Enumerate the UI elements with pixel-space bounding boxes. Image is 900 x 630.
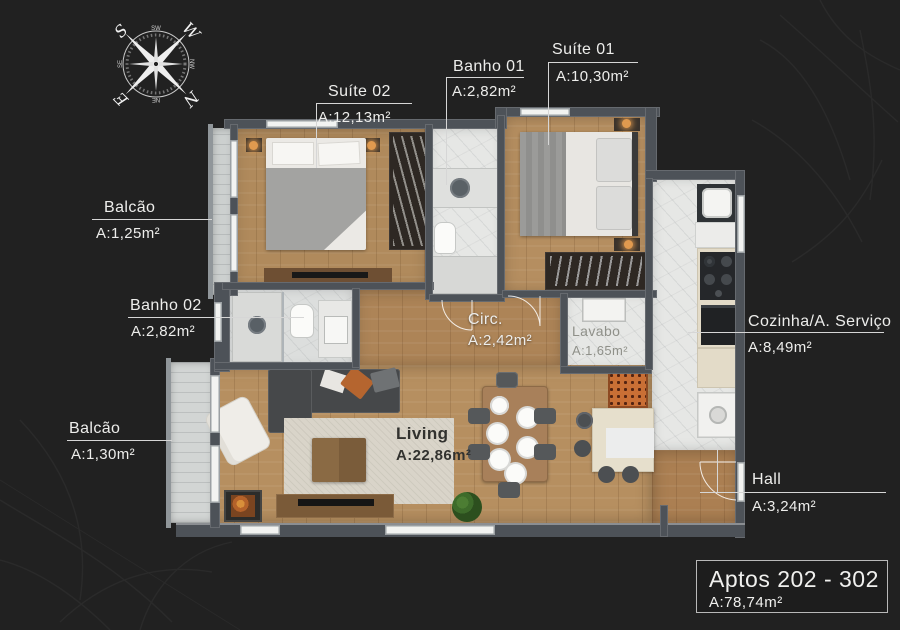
hall-door-arc	[700, 462, 736, 500]
room-area: A:1,30m²	[71, 446, 135, 464]
room-area: A:1,65m²	[572, 343, 628, 359]
room-area: A:2,82m²	[452, 83, 516, 101]
label-suite-01: Suíte 01	[552, 40, 615, 59]
room-area: A:2,42m²	[468, 332, 532, 350]
label-circ: Circ. A:2,42m²	[468, 310, 532, 350]
compass-inner-nw: NW	[188, 59, 194, 69]
apartment-title: Aptos 202 - 302	[709, 566, 887, 593]
apartment-title-box: Aptos 202 - 302 A:78,74m²	[696, 560, 888, 613]
room-name: Hall	[752, 470, 781, 489]
leader-line	[700, 492, 886, 493]
label-balcao-01: Balcão	[104, 198, 155, 217]
compass-inner-sw: SW	[151, 26, 161, 32]
label-banho-01-area: A:2,82m²	[452, 80, 516, 101]
label-balcao-02-area: A:1,30m²	[71, 443, 135, 464]
label-banho-02: Banho 02	[130, 296, 202, 315]
room-name: Balcão	[104, 198, 155, 217]
compass-inner-ne: NE	[152, 96, 160, 102]
label-banho-01: Banho 01	[453, 57, 525, 76]
label-suite-02: Suíte 02	[328, 82, 391, 101]
label-hall: Hall	[752, 470, 781, 489]
label-lavabo: Lavabo A:1,65m²	[572, 323, 628, 358]
room-name: Cozinha/A. Serviço	[748, 312, 891, 331]
leader-line	[316, 103, 317, 168]
leader-line	[717, 445, 718, 492]
room-area: A:12,13m²	[318, 109, 391, 127]
label-suite-02-area: A:12,13m²	[318, 106, 391, 127]
leader-line	[446, 77, 524, 78]
leader-line	[316, 103, 412, 104]
compass-letter-s: S	[110, 20, 131, 41]
leader-line	[128, 317, 304, 318]
label-balcao-01-area: A:1,25m²	[96, 222, 160, 243]
leader-line	[92, 219, 212, 220]
room-area: A:8,49m²	[748, 339, 812, 357]
room-name: Lavabo	[572, 323, 628, 340]
label-hall-area: A:3,24m²	[752, 495, 816, 516]
compass-letter-w: W	[179, 18, 205, 44]
room-name: Banho 02	[130, 296, 202, 315]
room-area: A:22,86m²	[396, 447, 471, 465]
label-cozinha-area: A:8,49m²	[748, 336, 812, 357]
apartment-total-area: A:78,74m²	[709, 594, 887, 611]
label-suite-01-area: A:10,30m²	[556, 65, 629, 86]
room-name: Banho 01	[453, 57, 525, 76]
floorplan-page: { "title_box": { "title": "Aptos 202 - 3…	[0, 0, 900, 630]
room-area: A:1,25m²	[96, 225, 160, 243]
room-area: A:10,30m²	[556, 68, 629, 86]
room-name: Circ.	[468, 310, 532, 329]
room-name: Suíte 02	[328, 82, 391, 101]
leader-line	[446, 77, 447, 185]
room-area: A:2,82m²	[131, 323, 195, 341]
leader-line	[548, 62, 549, 145]
label-living: Living A:22,86m²	[396, 424, 471, 465]
compass-inner-se: SE	[118, 60, 124, 68]
label-cozinha: Cozinha/A. Serviço	[748, 312, 891, 331]
room-area: A:3,24m²	[752, 498, 816, 516]
room-name: Living	[396, 424, 471, 444]
room-name: Balcão	[69, 419, 120, 438]
label-balcao-02: Balcão	[69, 419, 120, 438]
leader-line	[688, 332, 884, 333]
label-banho-02-area: A:2,82m²	[131, 320, 195, 341]
leader-line	[548, 62, 638, 63]
compass-rose-icon: SW NW NE SE S W E N	[100, 8, 212, 120]
leader-line	[67, 440, 172, 441]
room-name: Suíte 01	[552, 40, 615, 59]
